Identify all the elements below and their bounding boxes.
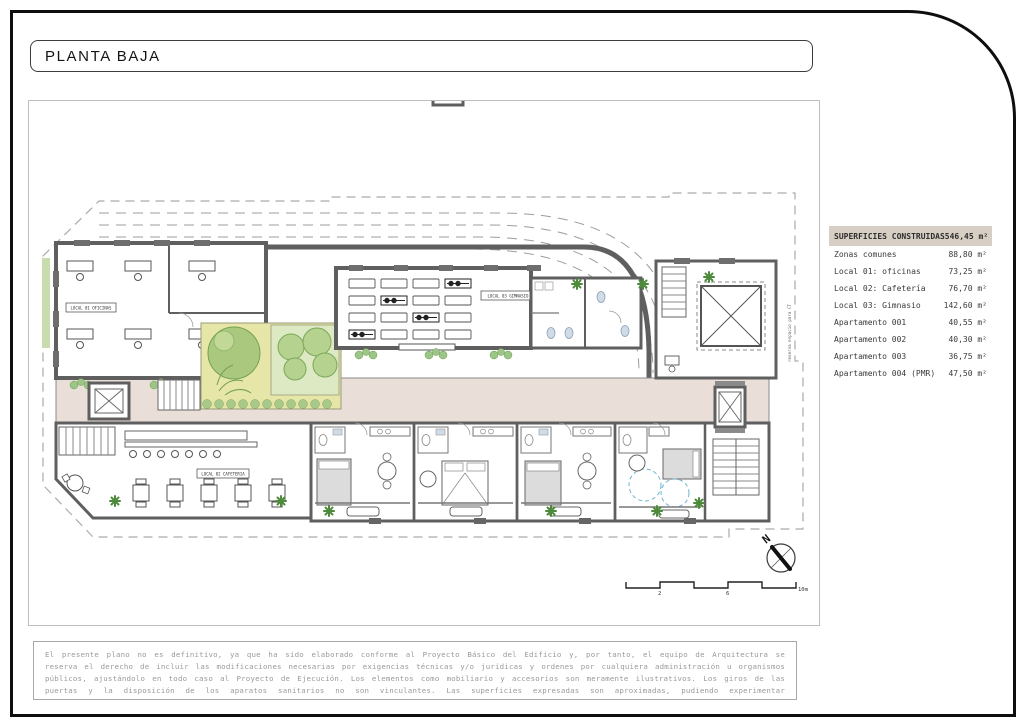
legend-header-label: SUPERFICIES CONSTRUIDAS <box>834 232 945 241</box>
legend-row: Apartamento 003 36,75 m² <box>829 348 992 365</box>
sheet: PLANTA BAJA <box>0 0 1024 724</box>
legend-row: Apartamento 004 (PMR) 47,50 m² <box>829 365 992 382</box>
stair-mid <box>158 380 200 410</box>
shaft-x <box>701 286 761 346</box>
disclaimer-text: El presente plano no es definitivo, ya q… <box>45 650 785 700</box>
floor-plan-svg: LOCAL 01 OFICINAS <box>29 101 819 625</box>
legend-row: Apartamento 002 40,30 m² <box>829 331 992 348</box>
right-tower <box>656 261 776 378</box>
compass-n-label: N <box>760 532 773 546</box>
surface-legend: SUPERFICIES CONSTRUIDAS 546,45 m² Zonas … <box>829 226 992 382</box>
legend-row: Local 01: oficinas 73,25 m² <box>829 263 992 280</box>
label-local02: LOCAL 02 CAFETERIA <box>201 472 245 477</box>
locker-rooms <box>531 278 641 348</box>
legend-header-value: 546,45 m² <box>945 232 988 241</box>
plan-frame: LOCAL 01 OFICINAS <box>28 100 820 626</box>
north-compass: N <box>760 532 795 572</box>
scale-6: 6 <box>726 591 729 597</box>
disclaimer-box: El presente plano no es definitivo, ya q… <box>33 641 797 700</box>
boundary-note: reserva espacio para CT <box>787 304 792 362</box>
gym-local03 <box>336 268 531 350</box>
garden-courtyard <box>201 323 341 409</box>
legend-row: Local 03: Gimnasio 142,60 m² <box>829 297 992 314</box>
scale-2: 2 <box>658 591 661 597</box>
scale-bar <box>626 582 796 588</box>
gym-label: LOCAL 03 GIMNASIO <box>481 291 535 300</box>
legend-row: Zonas comunes 88,80 m² <box>829 246 992 263</box>
legend-row: Apartamento 001 40,55 m² <box>829 314 992 331</box>
elevator-right <box>715 381 745 433</box>
title-box: PLANTA BAJA <box>30 40 813 72</box>
page-title: PLANTA BAJA <box>45 48 161 65</box>
right-core <box>433 101 463 105</box>
stair-tower <box>662 267 686 317</box>
hedge-left <box>42 258 50 348</box>
label-local03: LOCAL 03 GIMNASIO <box>488 294 530 299</box>
legend-row: Local 02: Cafetería 76,70 m² <box>829 280 992 297</box>
cafeteria-local02: LOCAL 02 CAFETERIA <box>56 423 311 518</box>
label-local01: LOCAL 01 OFICINAS <box>71 306 113 311</box>
legend-header: SUPERFICIES CONSTRUIDAS 546,45 m² <box>829 226 992 246</box>
stair-terrace <box>59 427 115 455</box>
stair-right <box>713 439 759 495</box>
scale-10m: 10m <box>798 587 809 593</box>
